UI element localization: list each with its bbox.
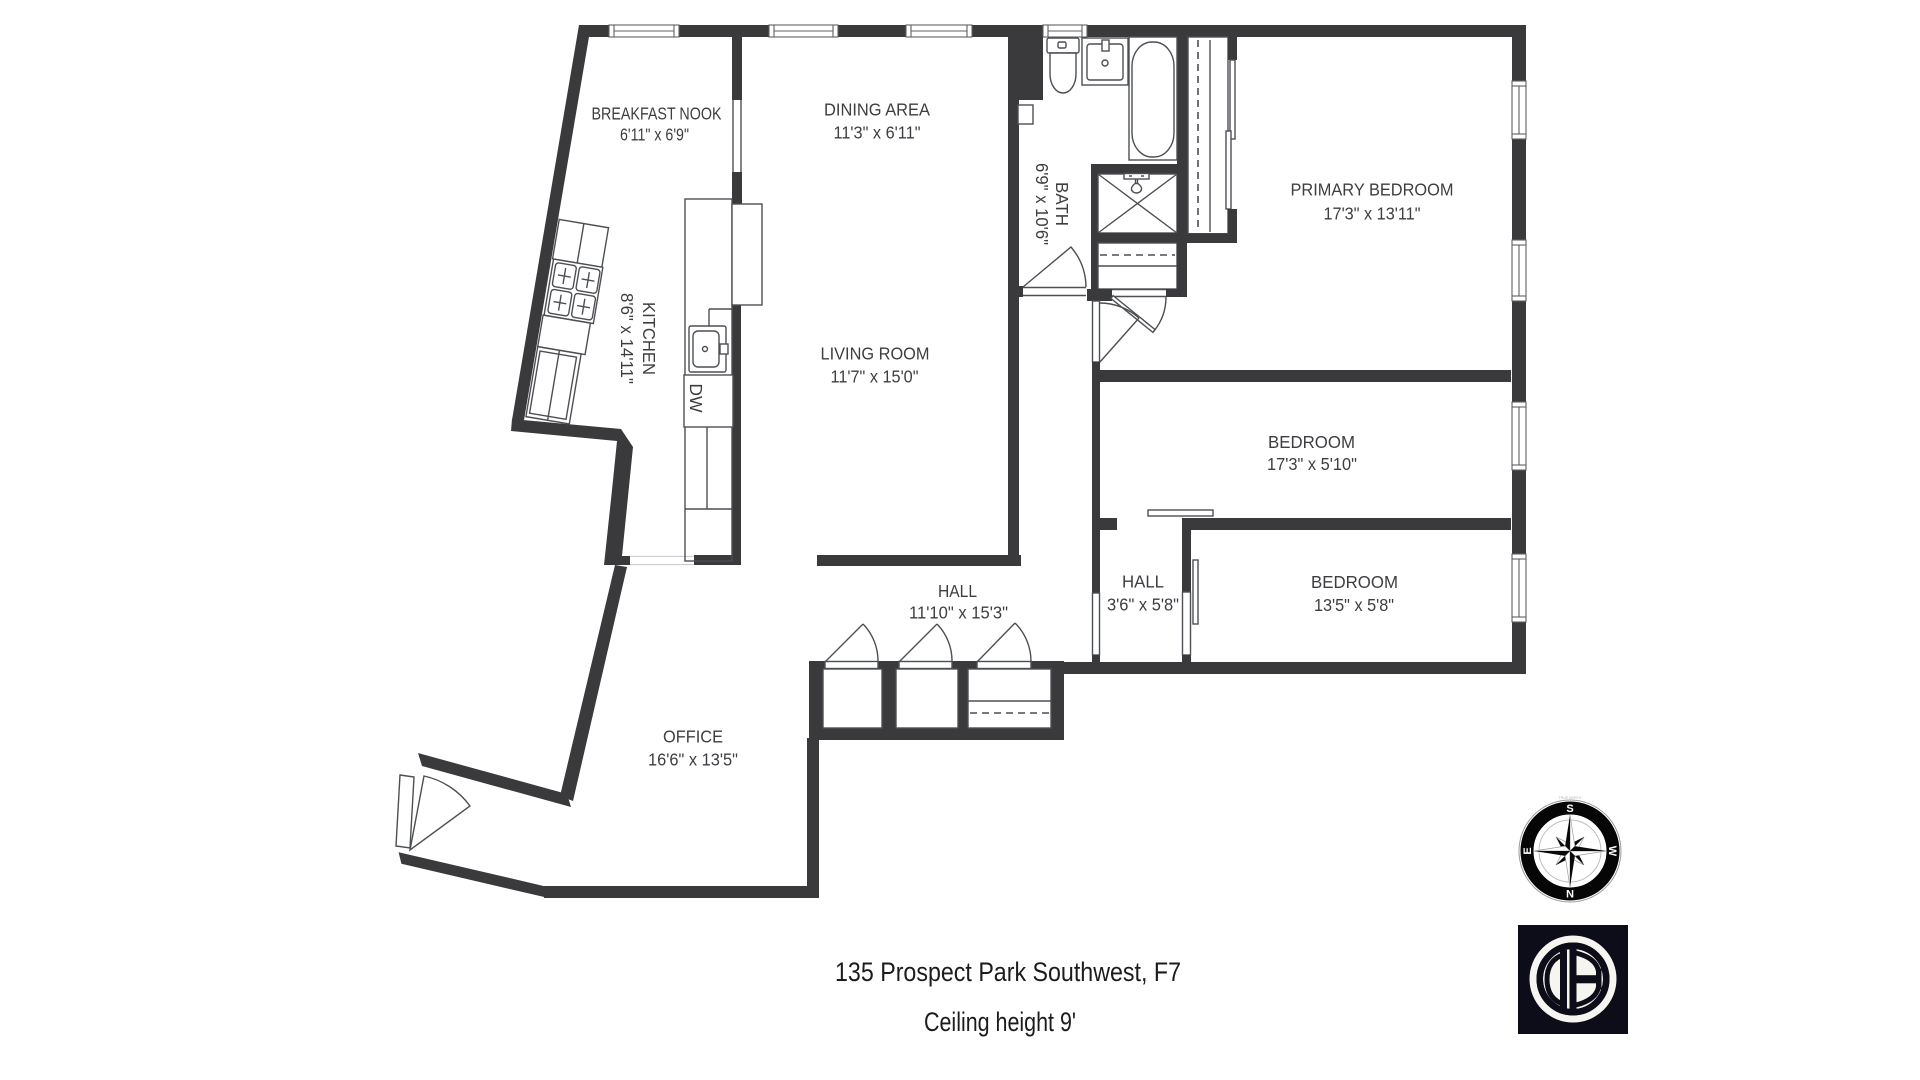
- svg-text:BEDROOM: BEDROOM: [1268, 432, 1355, 452]
- svg-text:OFFICE: OFFICE: [663, 727, 723, 747]
- svg-text:BATH: BATH: [1052, 182, 1072, 226]
- svg-text:8'6" x 14'11": 8'6" x 14'11": [617, 293, 637, 384]
- svg-text:S: S: [1566, 803, 1573, 815]
- svg-text:11'7" x 15'0": 11'7" x 15'0": [831, 367, 919, 387]
- svg-text:6'11" x 6'9": 6'11" x 6'9": [620, 125, 689, 145]
- svg-text:Ceiling height 9': Ceiling height 9': [924, 1007, 1076, 1037]
- svg-text:W: W: [1606, 846, 1618, 857]
- svg-text:KITCHEN: KITCHEN: [639, 302, 659, 375]
- svg-text:PRIMARY BEDROOM: PRIMARY BEDROOM: [1291, 180, 1454, 200]
- svg-text:DINING AREA: DINING AREA: [824, 100, 930, 120]
- svg-text:135 Prospect Park Southwest, F: 135 Prospect Park Southwest, F7: [835, 957, 1181, 987]
- svg-text:6'9" x 10'6": 6'9" x 10'6": [1032, 163, 1052, 245]
- svg-text:BREAKFAST NOOK: BREAKFAST NOOK: [592, 104, 722, 124]
- svg-text:HALL: HALL: [938, 581, 977, 601]
- svg-text:TRUE NORTH: TRUE NORTH: [1559, 796, 1582, 800]
- svg-text:17'3" x 13'11": 17'3" x 13'11": [1324, 204, 1421, 224]
- svg-text:11'10" x 15'3": 11'10" x 15'3": [909, 603, 1008, 623]
- svg-text:17'3" x 5'10": 17'3" x 5'10": [1267, 454, 1357, 474]
- svg-text:11'3" x 6'11": 11'3" x 6'11": [834, 123, 921, 143]
- svg-text:3'6" x 5'8": 3'6" x 5'8": [1107, 595, 1179, 615]
- svg-text:E: E: [1522, 847, 1534, 854]
- svg-text:BEDROOM: BEDROOM: [1311, 572, 1398, 592]
- svg-text:13'5" x 5'8": 13'5" x 5'8": [1314, 595, 1394, 615]
- svg-text:HALL: HALL: [1122, 572, 1164, 592]
- svg-text:16'6" x 13'5": 16'6" x 13'5": [648, 750, 738, 770]
- svg-text:N: N: [1566, 887, 1574, 899]
- svg-text:LIVING ROOM: LIVING ROOM: [821, 344, 930, 364]
- svg-text:DW: DW: [686, 383, 706, 413]
